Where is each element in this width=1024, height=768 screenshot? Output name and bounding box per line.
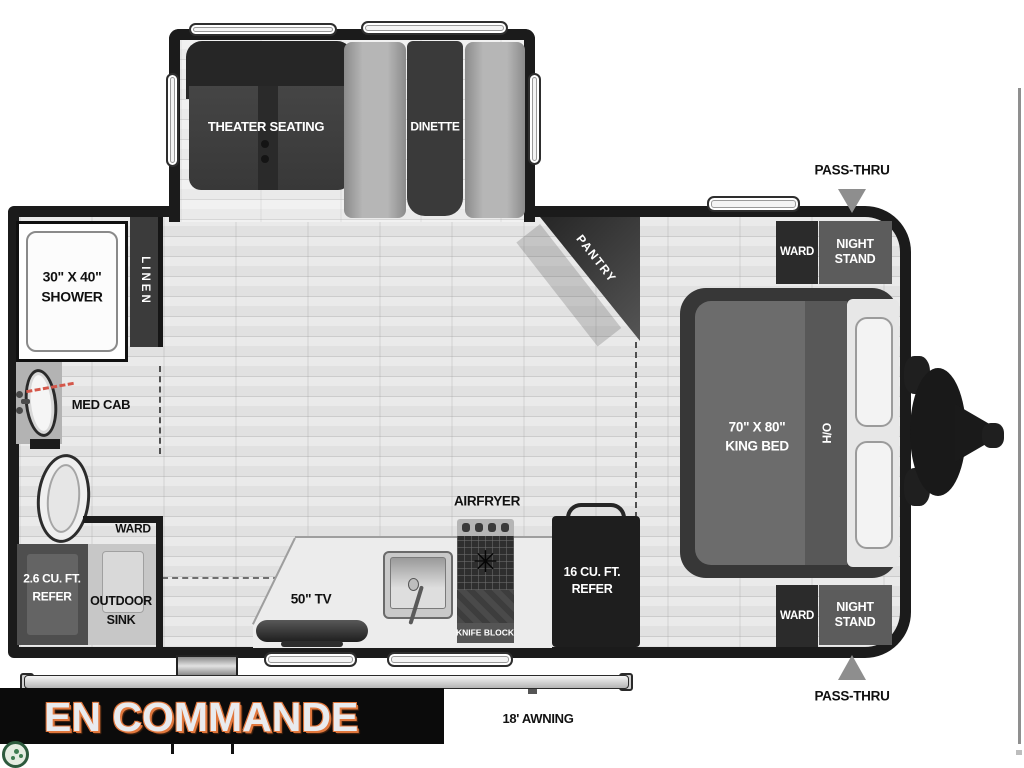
shower-size-label: 30" X 40" <box>43 268 102 286</box>
night-stand-top-label-1: NIGHT <box>836 237 873 253</box>
slideout-awning-bar-right <box>361 21 508 35</box>
range-knob-icon <box>462 523 470 532</box>
banner-tick <box>171 743 174 754</box>
status-banner-label: EN COMMANDE <box>44 694 358 741</box>
range-knob-icon <box>488 523 496 532</box>
dinette-bench-right <box>465 42 525 218</box>
stove-airfryer <box>457 536 514 590</box>
dinette-label: DINETTE <box>410 120 459 135</box>
floorplan-canvas: THEATER SEATING DINETTE PASS-THRU PANTRY… <box>0 0 1024 768</box>
ward-mid-label: WARD <box>115 522 150 537</box>
eco-logo-icon <box>2 741 29 768</box>
range-knob-icon <box>475 523 483 532</box>
slideout-awning-bar-left <box>189 23 337 36</box>
theater-seating-label: THEATER SEATING <box>208 119 324 135</box>
pass-thru-label-top: PASS-THRU <box>814 163 889 180</box>
faucet-icon <box>16 391 23 398</box>
tv <box>256 620 368 642</box>
cupholder-icon <box>261 155 269 163</box>
bottom-window-left <box>264 652 357 667</box>
oven-section <box>457 590 514 623</box>
tv-label: 50" TV <box>291 592 332 609</box>
range-knob-icon <box>501 523 509 532</box>
refer-small-size-label: 2.6 CU. FT. <box>23 572 80 587</box>
faucet-icon <box>16 407 23 414</box>
refrigerator-label: REFER <box>572 582 613 598</box>
theater-console <box>258 86 278 190</box>
right-edge-tick <box>1016 750 1022 755</box>
pillow <box>855 317 893 427</box>
med-cab-label: MED CAB <box>72 397 131 413</box>
outdoor-sink-label-2: SINK <box>107 613 136 629</box>
hitch-coupler <box>982 423 1004 448</box>
bath-wall-stub <box>30 439 60 449</box>
faucet-bar-icon <box>21 399 30 404</box>
night-stand-top-label-2: STAND <box>835 252 876 268</box>
ward-bottom-label: WARD <box>780 609 814 623</box>
pillow <box>855 441 893 549</box>
bottom-window-right <box>387 652 513 667</box>
tv-base <box>281 641 343 647</box>
banner-tick <box>231 743 234 754</box>
pass-thru-arrow-top-icon <box>838 189 866 213</box>
ward-top-label: WARD <box>780 245 814 259</box>
bed-size-label: 70" X 80" <box>729 420 786 437</box>
bed-label: KING BED <box>725 439 789 456</box>
shower-label: SHOWER <box>41 288 102 306</box>
pass-thru-arrow-bottom-icon <box>838 655 866 680</box>
refer-small-label: REFER <box>32 590 71 605</box>
awning-bar <box>24 675 629 689</box>
right-edge-line <box>1018 88 1021 744</box>
bedroom-window-top <box>707 196 800 212</box>
linen-label: LINEN <box>138 256 152 306</box>
divider-dashed-line <box>635 342 637 518</box>
awning-label: 18' AWNING <box>502 711 573 727</box>
kitchen-faucet-icon <box>408 578 419 591</box>
storage-wall-vertical <box>156 516 163 647</box>
cupholder-icon <box>261 140 269 148</box>
night-stand-bottom-label-1: NIGHT <box>836 600 873 616</box>
night-stand-bottom-label-2: STAND <box>835 615 876 631</box>
dinette-bench-left <box>344 42 406 218</box>
overhead-label: O/H <box>819 423 834 443</box>
pass-thru-label-bottom: PASS-THRU <box>814 689 889 706</box>
refrigerator-size-label: 16 CU. FT. <box>564 565 621 581</box>
bath-dashed-line <box>159 366 161 454</box>
airfryer-label: AIRFRYER <box>454 494 520 511</box>
awning-bracket <box>528 689 537 694</box>
slideout-window-left <box>166 73 179 167</box>
slideout-window-right <box>528 73 541 165</box>
outdoor-sink-label-1: OUTDOOR <box>90 594 152 610</box>
knife-block-label: KNIFE BLOCK <box>456 628 514 639</box>
